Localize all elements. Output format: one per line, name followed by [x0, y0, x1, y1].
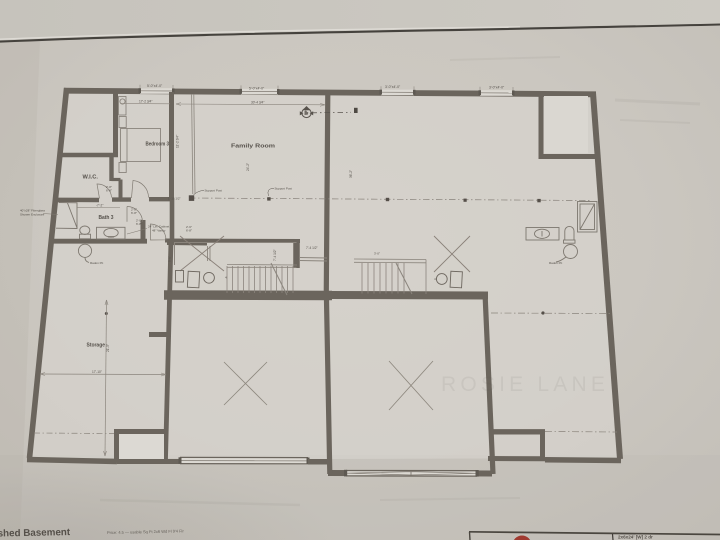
svg-text:7'-4 1/2": 7'-4 1/2" [306, 246, 318, 250]
svg-text:ROSIE LANE: ROSIE LANE [441, 373, 609, 396]
svg-text:3'-0": 3'-0" [374, 252, 380, 256]
svg-text:5'-0": 5'-0" [168, 256, 172, 262]
svg-text:48" Vanity: 48" Vanity [152, 229, 166, 233]
svg-text:Bedroom 3: Bedroom 3 [146, 142, 170, 148]
svg-text:Shower Enclosure: Shower Enclosure [20, 213, 45, 217]
svg-text:Family Room: Family Room [231, 144, 275, 150]
svg-text:-7'-2": -7'-2" [96, 204, 103, 208]
svg-text:5'-0"x4'-0": 5'-0"x4'-0" [147, 84, 163, 88]
svg-text:Support Post: Support Post [205, 189, 223, 193]
svg-text:Radon Pit: Radon Pit [90, 261, 103, 265]
svg-text:Support Post: Support Post [275, 186, 293, 190]
svg-text:6'-8": 6'-8" [136, 222, 142, 226]
svg-text:6'-8": 6'-8" [186, 229, 192, 233]
svg-text:7'-4 1/2": 7'-4 1/2" [273, 249, 277, 261]
svg-text:5'-0"x4'-0": 5'-0"x4'-0" [249, 87, 265, 91]
svg-text:3'-0"x4'-0": 3'-0"x4'-0" [489, 85, 505, 89]
svg-text:17'-2 3/4": 17'-2 3/4" [139, 99, 152, 103]
svg-text:11'-2 3/4": 11'-2 3/4" [176, 135, 180, 148]
svg-text:6'-8": 6'-8" [131, 211, 137, 215]
svg-text:W.I.C.: W.I.C. [83, 175, 99, 181]
svg-text:ished Basement: ished Basement [0, 527, 71, 540]
svg-text:1'-10 1/2": 1'-10 1/2" [168, 197, 181, 201]
svg-text:24'-2": 24'-2" [246, 163, 250, 171]
svg-text:Radon Pit: Radon Pit [549, 261, 562, 265]
svg-text:30'-4 3/4": 30'-4 3/4" [251, 100, 264, 104]
svg-text:21'-5": 21'-5" [106, 344, 110, 352]
svg-text:3'-0"x4'-0": 3'-0"x4'-0" [385, 85, 401, 89]
svg-text:Storage: Storage [87, 343, 106, 349]
svg-text:6'-8": 6'-8" [106, 189, 112, 193]
svg-text:36'-2": 36'-2" [349, 170, 353, 178]
svg-text:17'-10": 17'-10" [92, 370, 102, 374]
svg-text:2x6x24' [W] 2 dr: 2x6x24' [W] 2 dr [618, 535, 653, 540]
svg-text:Bath 3: Bath 3 [99, 215, 114, 221]
